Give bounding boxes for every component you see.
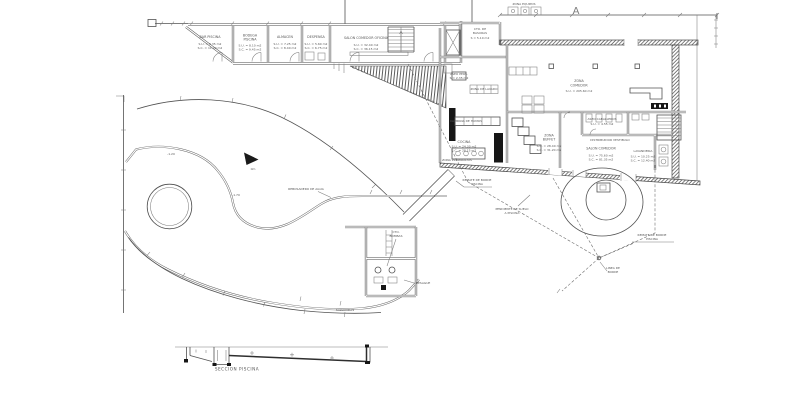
label-buffet-2: BUFFET [543, 138, 557, 142]
label-lavanderia: LAVANDERIA [634, 149, 654, 153]
label-zona-comedor: ZONA [574, 79, 584, 83]
label-zona-equipos: ZONA EQUIPOS [512, 2, 535, 6]
label-cocina: COCINA [458, 140, 472, 144]
label-rebosadero: REBOSADERO DE AGUA [288, 187, 325, 191]
section-title: SECCION PISCINA [215, 367, 259, 372]
pump-room [345, 227, 416, 296]
label-cota-120: -1.20 [167, 152, 175, 156]
label-pendiente-2: A PISCINA [505, 211, 521, 215]
laundry-machines [659, 145, 668, 166]
room-area-sc: S.C. = 6.75 m2 [305, 46, 328, 50]
label-aseo-caballeros: ASEO CABALLEROS [587, 117, 616, 121]
label-buffet-sc: S.C. = 31.20 m2 [537, 148, 562, 152]
pump-unit [381, 285, 386, 290]
room-label-almacen: ALMACEN [277, 35, 294, 39]
pool-edge-upper [126, 147, 447, 229]
room-area-sc: S.C. = 36.15 m2 [354, 47, 379, 51]
room-area-sc: S.C. = 9.45 m2 [239, 48, 262, 52]
pool-island [147, 184, 192, 229]
label-desague: DESAGUE [416, 281, 431, 285]
floor-plan-canvas: BAR PISCINA S.U. = 9.35 m2 S.C. = 11.20 … [0, 0, 800, 400]
room-label-bar-piscina: BAR PISCINA [200, 35, 222, 39]
label-campana: CAMPANA DE HUMOS [450, 119, 482, 123]
columns [549, 64, 640, 69]
label-cota-170: -1.70 [232, 193, 240, 197]
room-label-bodega-2: PISCINA [243, 38, 257, 42]
label-remate-borde-1b: PISCINA [471, 182, 484, 186]
label-cocina-sc: S.C. = 28.15 m2 [452, 149, 477, 153]
label-cuarto-basuras-2: BASURAS [473, 31, 487, 35]
label-aseo-caballeros-area: S.U. = 4.55 m2 [591, 122, 614, 126]
main-building: CTO. DE BASURAS S = 5.10 m2 ZONA EQUIPOS… [440, 2, 698, 178]
north-facade-wall-hatch [500, 40, 698, 45]
label-salon-sc: S.C. = 81.35 m2 [589, 158, 614, 162]
label-distribuidor: DISTRIBUIDOR VESTIBULO [590, 138, 630, 142]
bar-counter [630, 88, 662, 99]
room-label-salon-oficina: SALON COMEDOR OFICINA [344, 36, 389, 40]
label-salvavidas: SALVAVIDAS [336, 308, 354, 312]
deck-lower-edge [129, 238, 382, 314]
label-zona-lavado: ZONA DE LAVADO [470, 87, 498, 91]
label-remate-borde-2b: PISCINA [646, 237, 659, 241]
label-lavanderia-sc: S.C. = 12.40 m2 [631, 159, 656, 163]
pool-section-drawing: SECCION PISCINA [175, 345, 388, 372]
room-area-sc: S.C. = 11.20 m2 [198, 46, 223, 50]
label-cuarto-basuras-area: S = 5.10 m2 [471, 36, 490, 40]
pool-bar-strip-building: BAR PISCINA S.U. = 9.35 m2 S.C. = 11.20 … [186, 21, 462, 64]
label-linea-borde-2: BORDE [608, 270, 619, 274]
label-zona-comedor-2: COMEDOR [570, 84, 588, 88]
room-label-despensa: DESPENSA [307, 35, 325, 39]
label-zona-comedor-area: S.U. = 205.60 m2 [566, 89, 593, 93]
benchmark-label: 0m [251, 167, 256, 171]
pool-island-inner [151, 188, 189, 226]
label-salon-comedor: SALON COMEDOR [586, 147, 616, 151]
north-arrow-icon [244, 153, 259, 166]
label-cto-bombas-2: BOMBAS [390, 234, 403, 238]
roof-equipment-units [508, 7, 541, 15]
label-aseo-pers-area: S = 2.35 m2 [450, 76, 469, 80]
pool-area: 0m CTO. BOMBAS DESAGUE REBOSADERO DE AGU… [121, 95, 492, 317]
architectural-plan-drawing: BAR PISCINA S.U. = 9.35 m2 S.C. = 11.20 … [0, 0, 800, 400]
section-marker-a: A [573, 6, 580, 17]
room-area-sc: S.C. = 8.40 m2 [274, 46, 297, 50]
